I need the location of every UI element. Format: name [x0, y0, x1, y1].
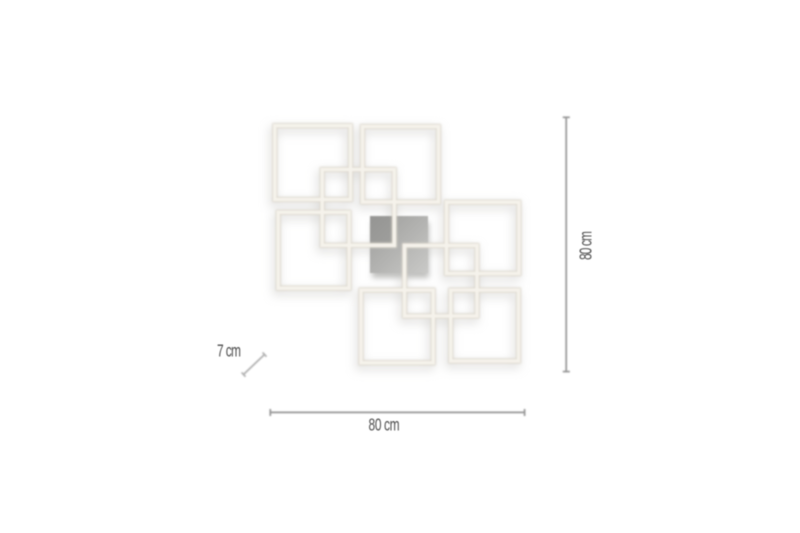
svg-text:80 cm: 80 cm	[576, 231, 596, 260]
svg-text:80 cm: 80 cm	[369, 415, 400, 435]
svg-text:7 cm: 7 cm	[217, 341, 241, 361]
